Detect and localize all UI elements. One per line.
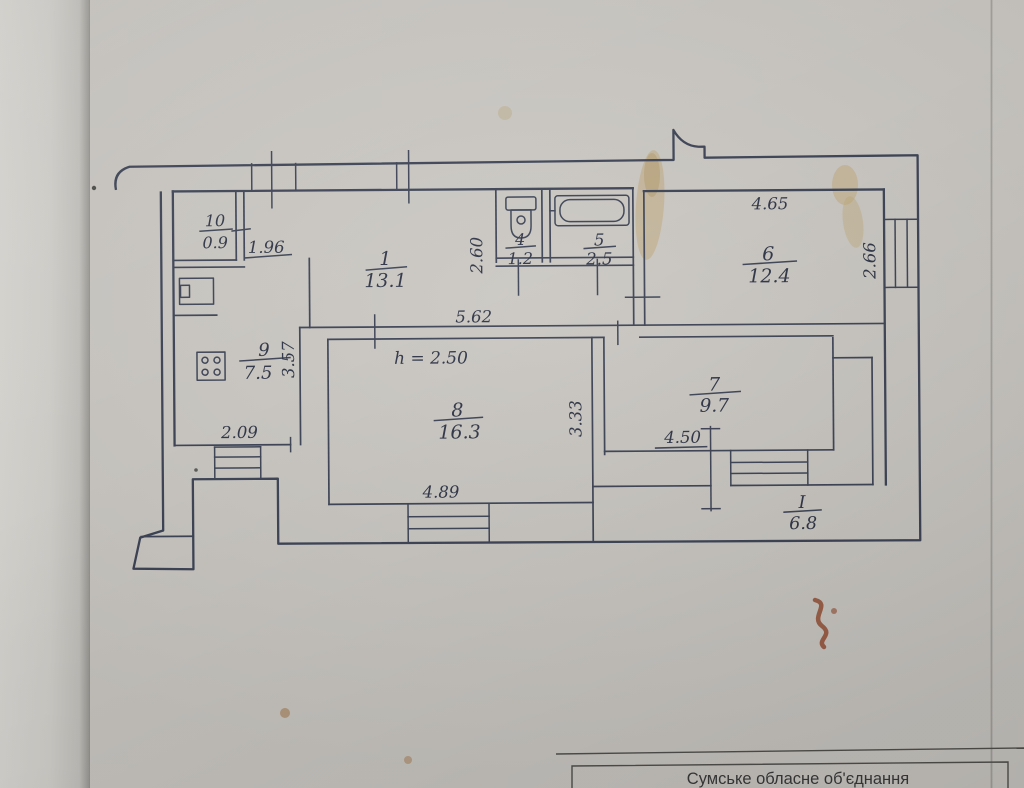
speck-plan bbox=[194, 468, 198, 472]
room-5-area: 2.5 bbox=[585, 249, 612, 268]
room-6-number: 6 bbox=[762, 243, 774, 265]
room-4-area: 1.2 bbox=[507, 249, 533, 268]
window-loggia bbox=[731, 450, 808, 486]
room-7-number: 7 bbox=[708, 375, 720, 396]
title-block: Сумське обласне об'єднання bbox=[556, 748, 1024, 788]
room-9-area: 7.5 bbox=[244, 363, 273, 384]
window-room6 bbox=[884, 219, 918, 287]
dim-5-62: 5.62 bbox=[455, 307, 492, 326]
stain-red-dot bbox=[831, 608, 837, 614]
room-6-area: 12.4 bbox=[748, 265, 790, 287]
dim-3-33: 3.33 bbox=[566, 400, 585, 437]
floor-plan-document: 10 0.9 1 13.1 4 1.2 5 2.5 6 12.4 9 7.5 8… bbox=[0, 0, 1024, 788]
stove-icon bbox=[197, 352, 225, 380]
stain-dot-bottom-left bbox=[280, 708, 290, 718]
dim-2-60: 2.60 bbox=[467, 237, 486, 275]
dim-4-65: 4.65 bbox=[750, 194, 788, 213]
room-10-number: 10 bbox=[205, 211, 225, 230]
room-8-number: 8 bbox=[451, 399, 463, 421]
bathtub-icon bbox=[550, 195, 629, 226]
room-8-area: 16.3 bbox=[438, 421, 480, 443]
room-7-area: 9.7 bbox=[700, 396, 730, 417]
floor-plan: 10 0.9 1 13.1 4 1.2 5 2.5 6 12.4 9 7.5 8… bbox=[115, 128, 920, 570]
speck-left-margin bbox=[92, 186, 96, 190]
loggia-area: 6.8 bbox=[789, 514, 817, 534]
room-5-number: 5 bbox=[594, 230, 605, 249]
note-ceiling-height: h = 2.50 bbox=[394, 348, 468, 369]
dim-2-66: 2.66 bbox=[860, 242, 879, 280]
room-4-number: 4 bbox=[514, 230, 525, 249]
room-10-area: 0.9 bbox=[202, 233, 228, 252]
title-block-outer-line bbox=[556, 748, 1024, 754]
title-block-text: Сумське обласне об'єднання bbox=[687, 770, 909, 788]
stain-red-squiggle bbox=[815, 600, 826, 647]
room-1-area: 13.1 bbox=[364, 270, 406, 292]
room-9-number: 9 bbox=[258, 340, 270, 361]
dim-3-57: 3.57 bbox=[279, 341, 298, 378]
room-1-number: 1 bbox=[379, 248, 391, 270]
dim-4-50: 4.50 bbox=[663, 428, 701, 447]
dim-4-89: 4.89 bbox=[421, 482, 459, 501]
stain-dot-bottom-mid bbox=[404, 756, 412, 764]
scanned-paper: 10 0.9 1 13.1 4 1.2 5 2.5 6 12.4 9 7.5 8… bbox=[0, 0, 1024, 788]
vent-box-icon bbox=[179, 278, 213, 304]
stain-dot-top bbox=[498, 106, 512, 120]
dim-2-09: 2.09 bbox=[220, 423, 258, 442]
window-room8 bbox=[408, 503, 489, 542]
dim-1-96: 1.96 bbox=[248, 238, 285, 257]
window-kitchen bbox=[215, 447, 261, 479]
loggia-number: I bbox=[797, 493, 806, 513]
